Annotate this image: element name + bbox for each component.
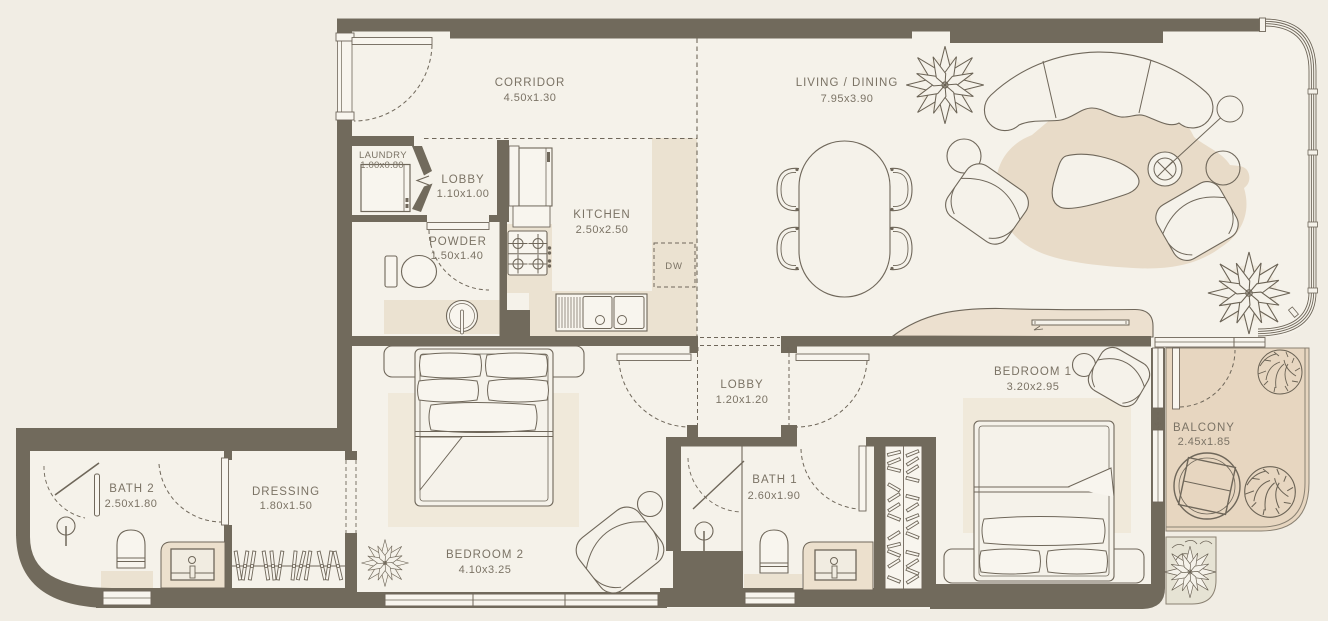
svg-text:DRESSING: DRESSING [252, 486, 320, 498]
svg-text:CORRIDOR: CORRIDOR [495, 77, 566, 89]
svg-text:1.50x1.40: 1.50x1.40 [431, 250, 484, 262]
svg-text:2.50x1.80: 2.50x1.80 [105, 498, 158, 510]
svg-text:1.00x0.80: 1.00x0.80 [360, 160, 404, 171]
svg-text:LOBBY: LOBBY [720, 379, 763, 391]
svg-text:1.10x1.00: 1.10x1.00 [437, 188, 490, 200]
svg-text:BEDROOM 2: BEDROOM 2 [446, 549, 524, 561]
svg-text:LIVING / DINING: LIVING / DINING [796, 77, 899, 89]
svg-text:BATH 1: BATH 1 [752, 474, 797, 486]
svg-text:BATH 2: BATH 2 [109, 483, 154, 495]
svg-text:4.10x3.25: 4.10x3.25 [459, 564, 512, 576]
svg-text:7.95x3.90: 7.95x3.90 [821, 93, 874, 105]
svg-text:KITCHEN: KITCHEN [573, 209, 630, 221]
svg-text:2.60x1.90: 2.60x1.90 [748, 490, 801, 502]
svg-text:2.45x1.85: 2.45x1.85 [1178, 436, 1231, 448]
svg-text:3.20x2.95: 3.20x2.95 [1007, 381, 1060, 393]
svg-text:POWDER: POWDER [429, 236, 487, 248]
svg-text:BALCONY: BALCONY [1173, 422, 1235, 434]
svg-text:LOBBY: LOBBY [441, 174, 484, 186]
svg-text:BEDROOM 1: BEDROOM 1 [994, 366, 1072, 378]
svg-text:2.50x2.50: 2.50x2.50 [576, 224, 629, 236]
svg-text:4.50x1.30: 4.50x1.30 [504, 92, 557, 104]
svg-text:1.20x1.20: 1.20x1.20 [716, 394, 769, 406]
svg-text:1.80x1.50: 1.80x1.50 [260, 500, 313, 512]
svg-text:DW: DW [665, 261, 682, 272]
